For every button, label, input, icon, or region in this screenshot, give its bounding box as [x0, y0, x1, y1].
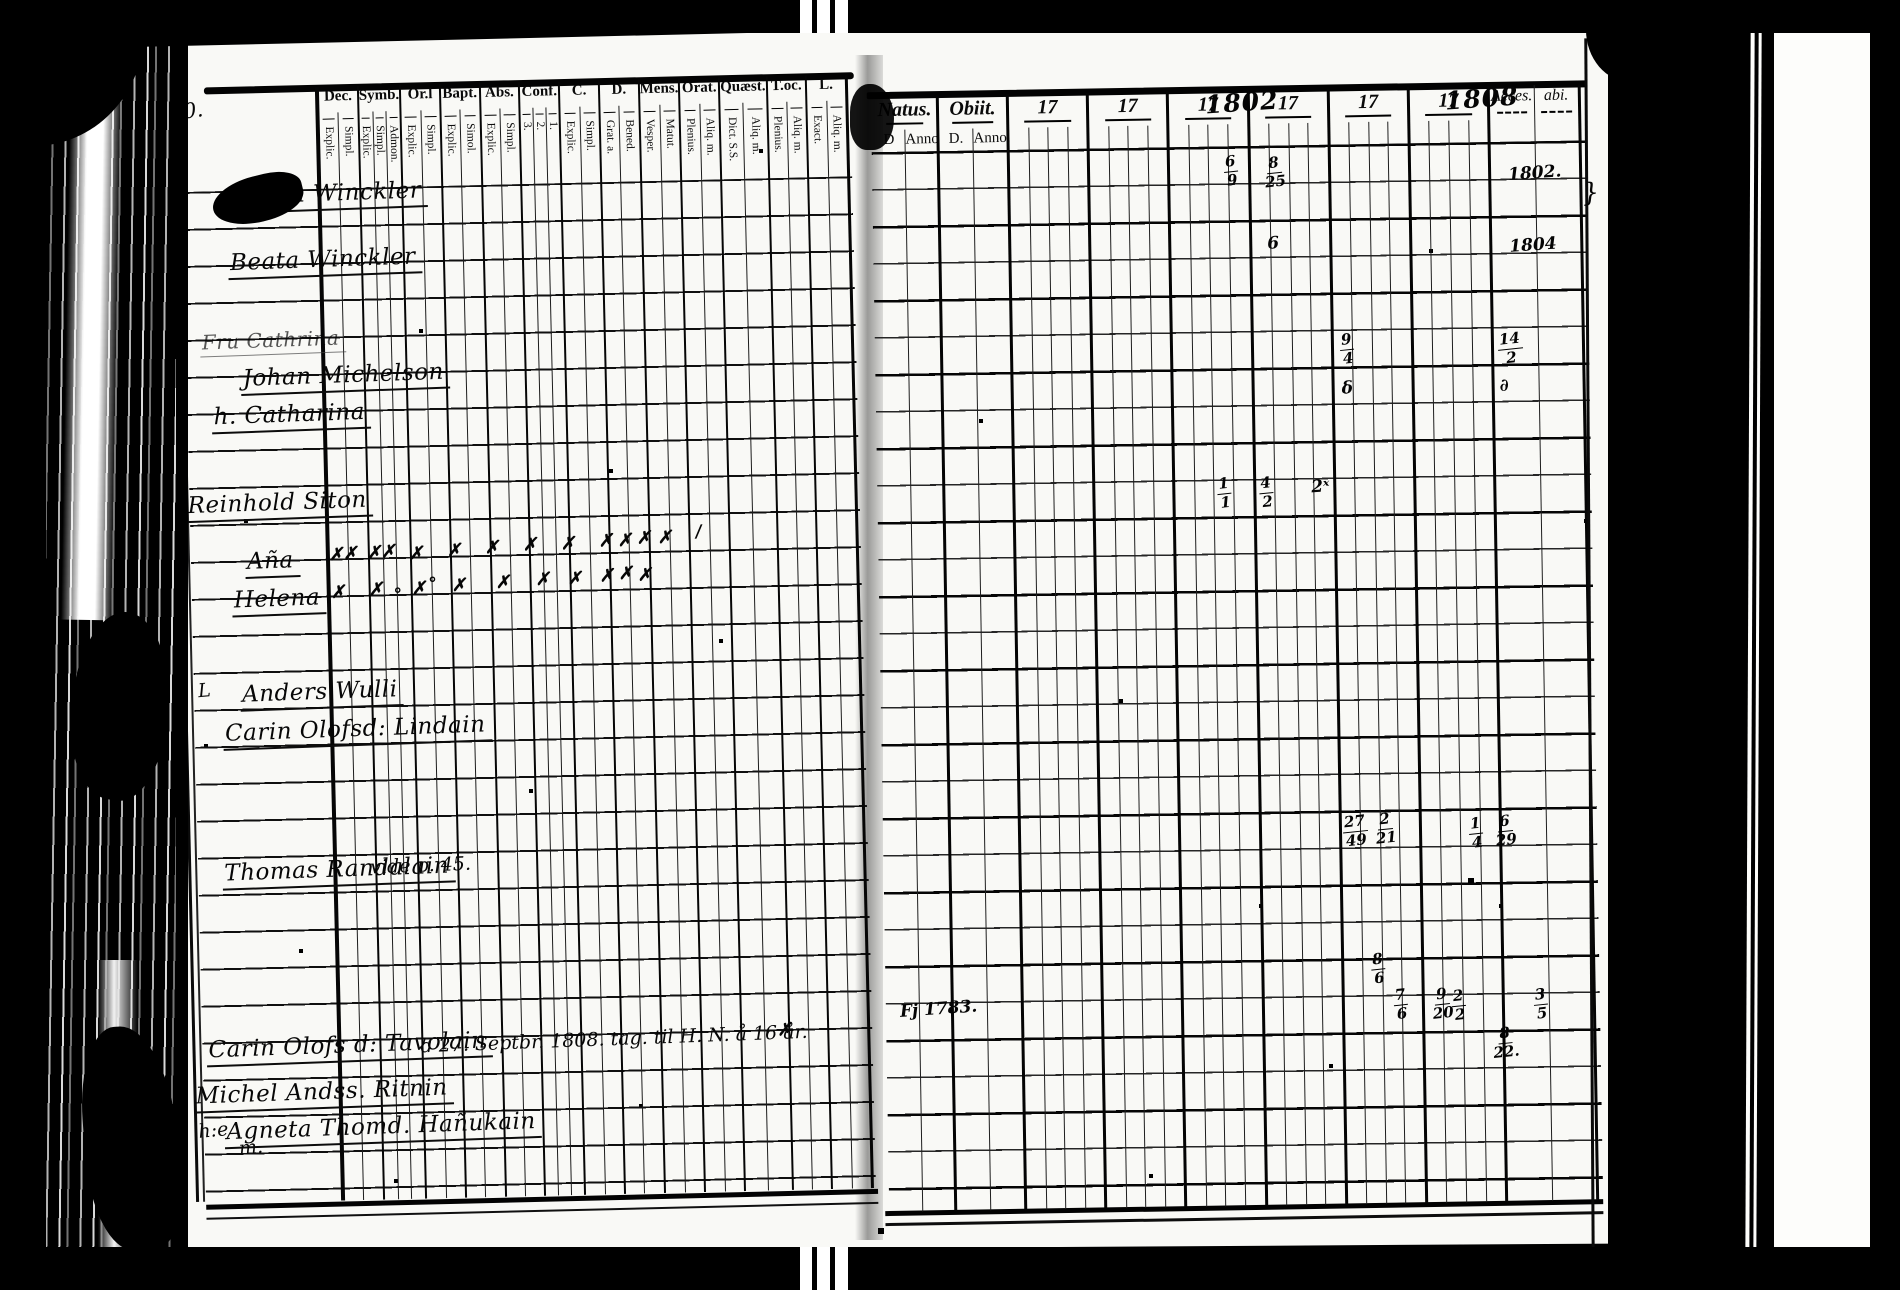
year-header-printed: 17 — [1329, 87, 1407, 114]
column-header-label: Mens. — [639, 78, 678, 105]
fraction-denominator: 5 — [1536, 1004, 1548, 1022]
column-header-label: C. — [560, 80, 598, 107]
fraction-mark: 27 49 — [1341, 813, 1369, 850]
handwritten-name: h. Catharina — [211, 399, 371, 435]
spine-tick — [830, 1247, 835, 1290]
handwritten-entry-mark: } — [1581, 178, 1600, 209]
fraction-mark: 8 22. — [1491, 1025, 1521, 1062]
sub-column-label: Plenius. — [771, 116, 785, 204]
fraction-denominator: 21 — [1375, 828, 1397, 847]
scan-white-band-right — [1774, 0, 1870, 1290]
attendance-x-mark: ✗ — [636, 528, 652, 549]
fraction-denominator: 9 — [1226, 171, 1238, 189]
header-underline — [1345, 115, 1391, 118]
column-header-label: T.oc. — [767, 75, 805, 102]
handwritten-entry-mark: 1802. — [1508, 161, 1562, 185]
fraction-mark: 2 21 — [1373, 811, 1397, 847]
fraction-numerator: 7 — [1392, 987, 1408, 1006]
column-header-label: Bapt. — [441, 83, 479, 110]
attendance-x-mark: ✗ — [776, 1020, 792, 1041]
attendance-x-mark: ✗ — [408, 543, 424, 564]
column-header-label: Orat. — [680, 77, 718, 104]
attendance-x-mark: ✗ — [618, 563, 634, 584]
fraction-denominator: 6 — [1373, 969, 1385, 987]
fraction-denominator: 25 — [1264, 172, 1286, 191]
right-page-column-grid: Natus. D Anno Obiit. D. — [873, 84, 1599, 1212]
attendance-x-mark: ✗ — [484, 537, 500, 558]
sub-column-label: Dict. S.S. — [726, 117, 740, 205]
fraction-numerator: 1 — [1216, 476, 1232, 495]
fraction-numerator: 8 — [1370, 951, 1386, 970]
sub-column-label: Grat. a. — [604, 120, 618, 208]
spine-smudge — [850, 84, 894, 150]
right-page: Natus. D Anno Obiit. D. — [866, 44, 1630, 1256]
attendance-x-mark: ✗ — [598, 531, 614, 552]
sub-column-label: Plenius. — [684, 118, 698, 206]
handwritten-name: Helena — [231, 584, 326, 617]
attendance-x-mark: ✗ — [446, 540, 462, 561]
column-header-label: Symb. — [359, 85, 400, 112]
fraction-numerator: 1 — [1467, 816, 1483, 835]
attendance-x-mark: ✗ — [330, 582, 346, 603]
handwritten-entry-mark: δ — [1341, 378, 1354, 399]
attendance-x-mark: ✗✗ — [366, 541, 396, 563]
attendance-x-mark: ✗ — [560, 534, 576, 555]
column-header-label: Dec. — [319, 86, 357, 113]
year-header-handwritten: 1802 — [1204, 86, 1279, 120]
attendance-x-mark: ✗ — [567, 568, 583, 589]
year-header-printed: 17 — [1009, 93, 1087, 120]
sub-column-label: Aliq. m. — [704, 117, 718, 205]
fraction-numerator: 2 — [1450, 988, 1466, 1007]
sub-column-label: Bened. — [623, 119, 637, 207]
handwritten-name: Aña — [245, 547, 301, 579]
fraction-denominator: 2 — [1505, 349, 1517, 367]
spine-tick — [812, 0, 817, 33]
sub-column-label: Explic. — [484, 123, 498, 211]
sub-column-label: Aliq. m. — [830, 114, 844, 202]
handwritten-entry-mark: 1804 — [1509, 234, 1558, 257]
sub-column-label: Simpl. — [504, 122, 518, 210]
handwritten-entry-mark: 6 — [1267, 233, 1280, 254]
attendance-x-mark: ✗ — [368, 579, 384, 600]
sub-column-label: Exact. — [811, 115, 825, 203]
header-underline — [1265, 116, 1311, 119]
obiit-anno-label: Anno. — [973, 130, 1006, 148]
attendance-x-mark: ✗ — [657, 527, 673, 548]
fraction-numerator: 9 — [1338, 332, 1354, 351]
attendance-x-mark: ° — [393, 585, 403, 606]
attendance-x-mark: ✗ — [599, 566, 615, 587]
attendance-x-mark: ✗ — [451, 575, 467, 596]
attendance-x-mark: ✗ — [411, 578, 427, 599]
handwritten-name: Anders Wulli — [240, 676, 404, 712]
scanned-register-spread: Dec. Explic. Simpl. — [0, 0, 1900, 1290]
fraction-numerator: 3 — [1532, 987, 1548, 1006]
handwritten-name: Fru Cathrina — [199, 325, 345, 357]
fraction-numerator: 4 — [1258, 475, 1274, 494]
marginal-note: vide p. 45. — [370, 853, 471, 879]
fraction-numerator: 6 — [1222, 154, 1238, 173]
obiit-day-label: D. — [939, 130, 972, 148]
abi-label: abi. — [1534, 86, 1578, 105]
spine-tick — [812, 1247, 817, 1290]
year-header-printed: 17 — [1089, 91, 1167, 118]
attendance-x-mark: ✗ — [535, 569, 551, 590]
attendance-x-mark: ✗✗ — [328, 543, 358, 565]
column-header-label: L. — [807, 74, 845, 101]
spine-notch-top — [800, 0, 848, 33]
sub-column-label: Aliq. m. — [791, 115, 805, 203]
fraction-denominator: 2 — [1454, 1006, 1466, 1024]
sub-column-label: Matut. — [664, 118, 678, 206]
sub-column-label: Aliq. m. — [749, 116, 763, 204]
fraction-denominator: 22. — [1493, 1042, 1521, 1061]
scan-border-bottom — [0, 1247, 1900, 1290]
marginal-note: m. — [238, 1136, 264, 1160]
column-header-label: Abs. — [480, 82, 518, 109]
attendance-x-mark: ✗ — [522, 534, 538, 555]
attendance-x-mark: ✗ — [617, 530, 633, 551]
spine-tick — [830, 0, 835, 33]
year-header-handwritten: 1808 — [1444, 82, 1519, 116]
sub-column-label: Simol. — [464, 123, 478, 211]
obiit-header: Obiit. — [939, 94, 1006, 121]
handwritten-entry-mark: 2ˣ — [1311, 476, 1331, 497]
sub-column-label: Vesper. — [644, 119, 658, 207]
fraction-denominator: 49 — [1345, 831, 1367, 850]
marginal-note: L — [197, 679, 212, 702]
fraction-denominator: 2 — [1261, 493, 1273, 511]
attendance-x-mark: ✗ — [495, 572, 511, 593]
natus-anno-label: Anno — [905, 131, 936, 149]
header-underline — [1025, 120, 1071, 123]
handwritten-entry-mark: ∂ — [1499, 375, 1509, 396]
attendance-x-mark: ° — [428, 574, 438, 595]
fraction-mark: 14 2 — [1496, 330, 1524, 367]
spine-notch-bottom — [800, 1247, 848, 1290]
column-header-label: D. — [600, 79, 638, 106]
sub-column-label: Explic. — [445, 124, 459, 212]
fraction-denominator: 6 — [1396, 1005, 1408, 1023]
fraction-denominator: 29 — [1495, 830, 1517, 849]
fraction-denominator: 4 — [1471, 833, 1483, 851]
sub-column-label: Simpl. — [584, 120, 598, 208]
fraction-mark: 8 25 — [1262, 155, 1286, 191]
fraction-denominator: 1 — [1219, 494, 1231, 512]
header-underline — [953, 121, 993, 124]
sub-column-label: Explic. — [564, 121, 578, 209]
attendance-x-mark: ✗ — [637, 565, 653, 586]
fraction-mark: 6 29 — [1493, 813, 1517, 849]
marginal-note: h:e — [197, 1118, 229, 1143]
fraction-denominator: 4 — [1342, 350, 1354, 368]
column-header-label: Quæst. — [720, 76, 766, 103]
column-header-label: Or.l — [401, 84, 439, 111]
header-underline — [1105, 119, 1151, 122]
column-header-label: Conf. — [520, 81, 559, 108]
